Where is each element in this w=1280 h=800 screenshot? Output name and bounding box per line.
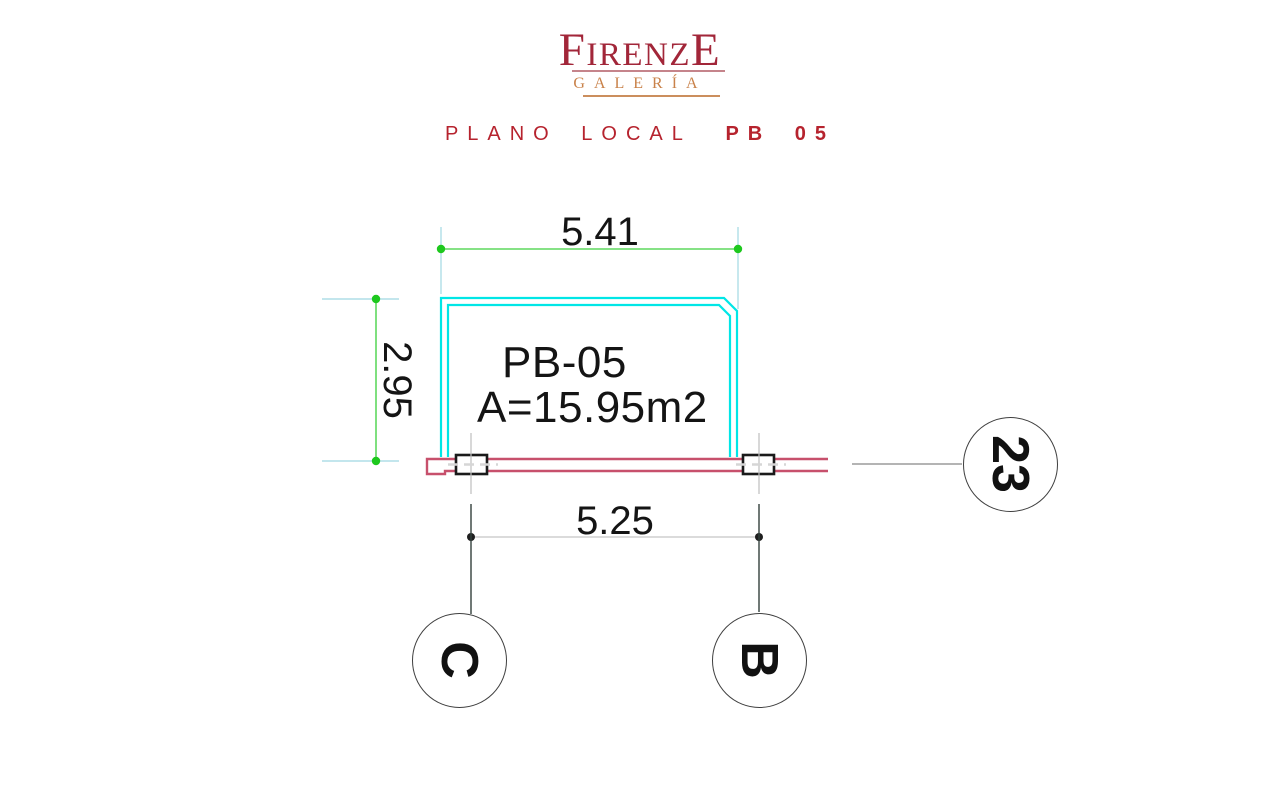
grid-axis-b-label: B (733, 641, 785, 679)
column-axis-lines (471, 433, 759, 494)
grid-axis-23-label: 23 (984, 435, 1036, 493)
grid-bubble-c: C (412, 613, 507, 708)
dim-top-value: 5.41 (460, 212, 740, 252)
grid-bubble-23: 23 (963, 417, 1058, 512)
dim-dot (372, 295, 380, 303)
unit-area-label: A=15.95m2 (477, 386, 708, 430)
unit-code-label: PB-05 (502, 341, 627, 385)
grid-bubble-b: B (712, 613, 807, 708)
dim-dot (437, 245, 445, 253)
plan-sheet: F IRENZ E GALERÍA PLANO LOCAL PB 05 (0, 0, 1280, 800)
dim-bottom-value: 5.25 (475, 501, 755, 541)
grid-axis-c-label: C (433, 641, 485, 679)
dim-left-value: 2.95 (377, 320, 417, 440)
dim-dot (372, 457, 380, 465)
